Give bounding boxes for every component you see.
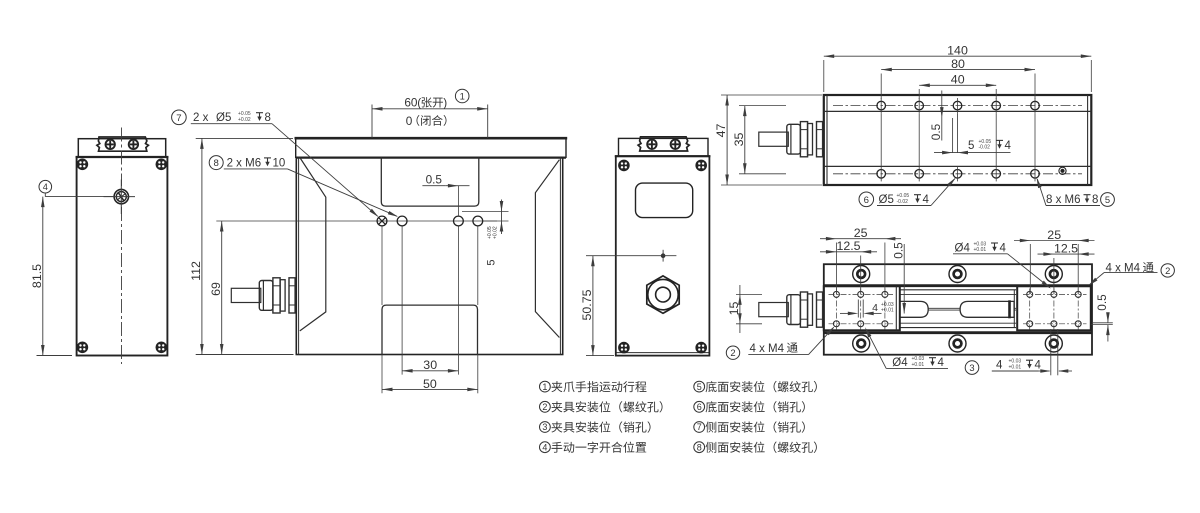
svg-text:35: 35 xyxy=(732,133,746,147)
svg-text:Ø4: Ø4 xyxy=(892,357,908,369)
svg-text:+0.01: +0.01 xyxy=(912,362,925,368)
svg-text:0.5: 0.5 xyxy=(1095,294,1109,311)
svg-text:2: 2 xyxy=(542,402,547,412)
svg-text:25: 25 xyxy=(1047,228,1061,242)
svg-text:5: 5 xyxy=(697,382,702,392)
svg-text:6: 6 xyxy=(864,195,869,206)
svg-text:4: 4 xyxy=(923,194,930,206)
svg-text:1: 1 xyxy=(542,382,547,392)
svg-text:0.5: 0.5 xyxy=(891,242,905,259)
svg-text:4: 4 xyxy=(938,357,945,369)
svg-text:5: 5 xyxy=(968,140,974,152)
svg-text:8: 8 xyxy=(214,158,219,169)
svg-text:+0.02: +0.02 xyxy=(238,117,251,123)
svg-text:0: 0 xyxy=(406,114,413,128)
svg-text:4: 4 xyxy=(996,360,1003,372)
svg-text:4: 4 xyxy=(872,302,878,314)
svg-text:(: ( xyxy=(417,96,421,110)
svg-text:2 x M6: 2 x M6 xyxy=(227,157,262,169)
svg-text:12.5: 12.5 xyxy=(1054,241,1078,255)
svg-text:Ø5: Ø5 xyxy=(879,194,894,206)
svg-text:140: 140 xyxy=(947,43,968,57)
svg-text:60: 60 xyxy=(404,96,418,110)
svg-text:25: 25 xyxy=(854,226,868,240)
svg-text:10: 10 xyxy=(273,157,286,169)
svg-text:-0.02: -0.02 xyxy=(897,199,909,205)
svg-text:47: 47 xyxy=(714,124,728,138)
svg-text:15: 15 xyxy=(727,302,741,316)
svg-text:80: 80 xyxy=(951,57,965,71)
svg-text:Ø5: Ø5 xyxy=(216,112,231,124)
svg-text:+0.02: +0.02 xyxy=(493,226,499,239)
svg-text:8: 8 xyxy=(697,442,702,452)
svg-text:): ) xyxy=(443,96,447,110)
svg-text:5: 5 xyxy=(485,259,497,265)
svg-text:8: 8 xyxy=(265,112,271,124)
svg-text:69: 69 xyxy=(209,282,223,296)
svg-text:4: 4 xyxy=(1005,140,1012,152)
svg-text:7: 7 xyxy=(697,422,702,432)
svg-text:30: 30 xyxy=(423,358,437,372)
svg-text:0.5: 0.5 xyxy=(929,123,943,140)
svg-text:6: 6 xyxy=(697,402,702,412)
svg-text:112: 112 xyxy=(189,261,203,281)
svg-text:2: 2 xyxy=(1165,265,1170,276)
svg-text:+0.01: +0.01 xyxy=(1009,364,1022,370)
svg-text:4: 4 xyxy=(1000,243,1007,255)
svg-text:2: 2 xyxy=(730,347,735,358)
svg-text:40: 40 xyxy=(951,73,965,87)
svg-text:50: 50 xyxy=(423,377,437,391)
svg-text:8: 8 xyxy=(1092,194,1098,206)
svg-text:3: 3 xyxy=(969,362,974,373)
svg-text:1: 1 xyxy=(460,90,465,101)
svg-text:7: 7 xyxy=(176,113,181,124)
svg-text:3: 3 xyxy=(542,422,547,432)
svg-text:81.5: 81.5 xyxy=(30,264,44,288)
svg-text:8 x M6: 8 x M6 xyxy=(1046,194,1081,206)
svg-text:4: 4 xyxy=(542,442,547,452)
svg-text:4 x M4: 4 x M4 xyxy=(750,343,785,355)
svg-text:0.5: 0.5 xyxy=(426,173,443,187)
svg-text:50.75: 50.75 xyxy=(580,289,594,320)
svg-text:-0.02: -0.02 xyxy=(979,145,991,151)
svg-text:4: 4 xyxy=(43,182,48,192)
svg-text:Ø4: Ø4 xyxy=(955,243,971,255)
svg-text:12.5: 12.5 xyxy=(836,239,860,253)
svg-text:5: 5 xyxy=(1105,194,1110,205)
svg-text:+0.01: +0.01 xyxy=(881,307,894,313)
svg-text:2 x: 2 x xyxy=(193,112,209,124)
svg-text:+0.01: +0.01 xyxy=(974,247,987,253)
